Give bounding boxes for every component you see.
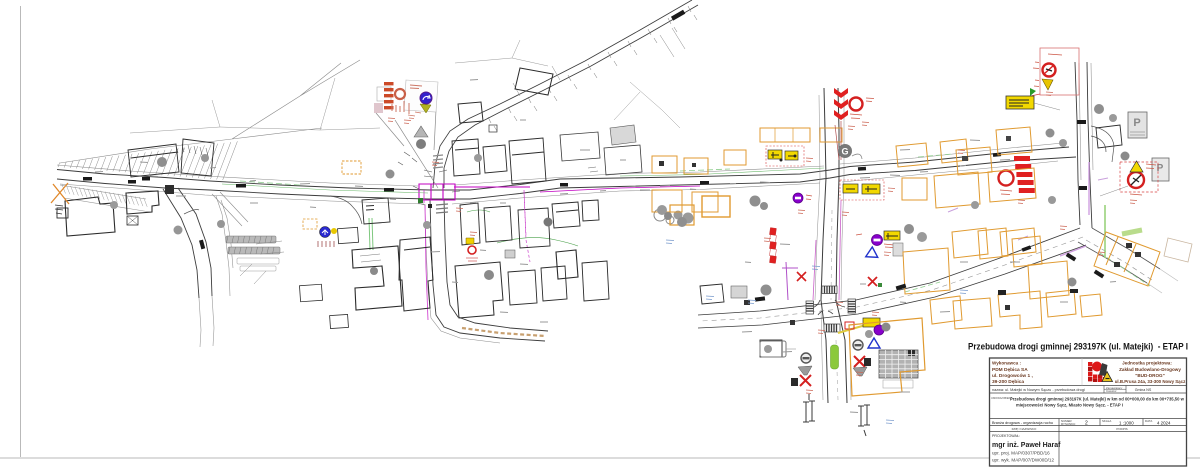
svg-text:"BUD-DROG": "BUD-DROG"	[1135, 373, 1165, 378]
svg-text:Przebudowa drogi gminnej 29319: Przebudowa drogi gminnej 293197K (ul. Ma…	[968, 342, 1188, 352]
svg-text:DATA: DATA	[1145, 419, 1152, 423]
svg-text:Jednostka projektowa:: Jednostka projektowa:	[1122, 361, 1172, 366]
svg-text:upr. proj. MAP/0307/PBD/16: upr. proj. MAP/0307/PBD/16	[992, 451, 1050, 456]
svg-text:Inwestor: Inwestor	[1106, 389, 1117, 393]
svg-text:SKALA: SKALA	[1102, 419, 1111, 423]
svg-text:ul. Drogowców 1 ,: ul. Drogowców 1 ,	[992, 373, 1033, 379]
svg-text:Przebudowa drogi gminnej 29319: Przebudowa drogi gminnej 293197K (ul. Ma…	[1010, 397, 1185, 402]
svg-text:P: P	[1133, 117, 1140, 129]
svg-text:IMIĘ I NAZWISKO: IMIĘ I NAZWISKO	[1012, 427, 1037, 431]
svg-text:2: 2	[1085, 421, 1088, 427]
svg-text:PROJEKTOWAŁ:: PROJEKTOWAŁ:	[992, 434, 1020, 438]
svg-text:Wykonawca :: Wykonawca :	[992, 361, 1021, 366]
svg-text:Gmina NS: Gmina NS	[1135, 388, 1152, 392]
svg-text:G: G	[841, 147, 848, 157]
svg-text:nazwa: ul. Matejki w Nowym S: nazwa: ul. Matejki w Nowym Sączu - przeb…	[992, 388, 1085, 392]
svg-text:RYSUNKU:: RYSUNKU:	[1061, 422, 1076, 426]
svg-text:Branża drogowa - organizacja r: Branża drogowa - organizacja ruchu	[992, 421, 1053, 425]
svg-text:upr. wyk. MAP/007/DW00D/12: upr. wyk. MAP/007/DW00D/12	[992, 458, 1054, 463]
svg-text:PDM Dębica SA: PDM Dębica SA	[992, 367, 1028, 373]
svg-text:PODPIS: PODPIS	[1116, 427, 1127, 431]
svg-text:4 2024: 4 2024	[1157, 421, 1171, 426]
svg-text:39-200 Dębica: 39-200 Dębica	[992, 379, 1024, 385]
svg-text:ul.B.Prusa 24a, 33-300 Nowy Są: ul.B.Prusa 24a, 33-300 Nowy Sącz	[1115, 379, 1186, 384]
svg-text:mgr inż. Paweł Haraf: mgr inż. Paweł Haraf	[992, 442, 1061, 449]
svg-text:miejscowości Nowy Sącz, Miasto: miejscowości Nowy Sącz, Miasto Nowy Sącz…	[1016, 403, 1123, 408]
svg-text:1 :1000: 1 :1000	[1119, 421, 1134, 426]
svg-text:Zakład Budowlano-Drogowy: Zakład Budowlano-Drogowy	[1119, 367, 1181, 372]
